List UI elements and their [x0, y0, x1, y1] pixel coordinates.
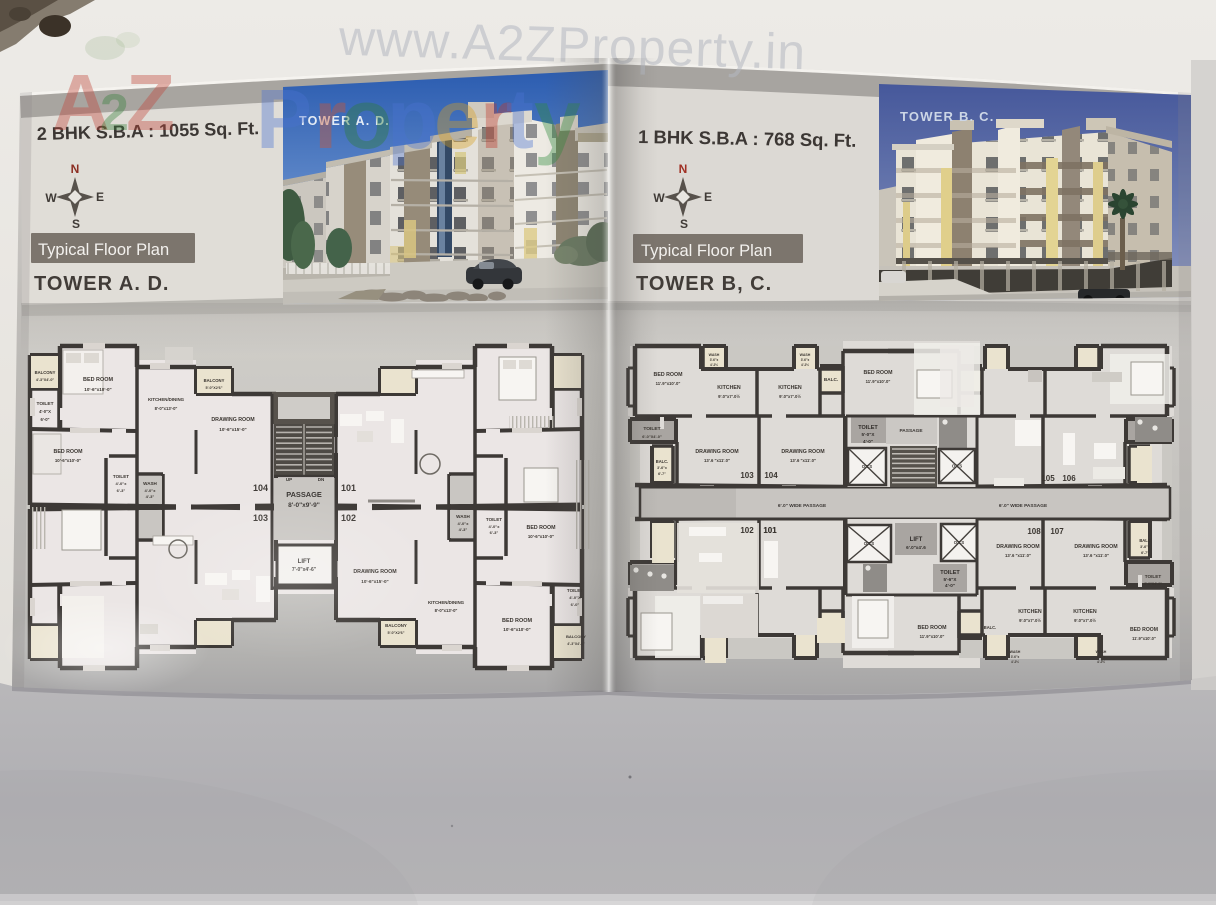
svg-text:106: 106 — [1062, 474, 1076, 483]
svg-text:O.T.S: O.T.S — [954, 540, 965, 545]
svg-text:9'.0"x7'.0½: 9'.0"x7'.0½ — [718, 394, 740, 399]
svg-text:13'.6 "x11'.0": 13'.6 "x11'.0" — [704, 458, 730, 463]
svg-text:KITCHEN/DINING: KITCHEN/DINING — [148, 397, 185, 402]
svg-text:11'.9"x10'.0": 11'.9"x10'.0" — [866, 379, 891, 384]
svg-text:4'-3": 4'-3" — [459, 527, 468, 532]
svg-text:10'-6"x10'-0": 10'-6"x10'-0" — [84, 387, 111, 392]
svg-text:8'-0"x13'-0": 8'-0"x13'-0" — [435, 608, 458, 613]
svg-text:6'-3": 6'-3" — [490, 530, 499, 535]
svg-text:9'.0"x7'.0½: 9'.0"x7'.0½ — [1074, 618, 1096, 623]
svg-text:O.T.S: O.T.S — [864, 541, 875, 546]
svg-text:LIFT: LIFT — [910, 537, 923, 543]
svg-text:DRAWING ROOM: DRAWING ROOM — [695, 449, 739, 455]
svg-text:TOWER B. C.: TOWER B. C. — [900, 109, 995, 124]
svg-text:TOILET: TOILET — [113, 474, 129, 479]
svg-text:6'-3": 6'-3" — [117, 488, 126, 493]
svg-text:DRAWING ROOM: DRAWING ROOM — [996, 544, 1040, 550]
svg-text:P: P — [256, 72, 312, 166]
svg-text:6'.0"x4'.6: 6'.0"x4'.6 — [906, 545, 926, 550]
svg-text:3'-6"x: 3'-6"x — [1140, 545, 1150, 549]
svg-text:4'.2½: 4'.2½ — [710, 363, 718, 367]
svg-text:BED ROOM: BED ROOM — [1130, 627, 1158, 633]
svg-text:6'-7": 6'-7" — [658, 472, 666, 476]
svg-text:DRAWING ROOM: DRAWING ROOM — [211, 417, 255, 423]
svg-text:4'.2½: 4'.2½ — [1097, 660, 1105, 664]
svg-text:101: 101 — [341, 483, 356, 493]
svg-text:KITCHEN: KITCHEN — [778, 385, 802, 391]
svg-text:11'.9"x10'.0": 11'.9"x10'.0" — [656, 381, 681, 386]
svg-text:TOWER A. D.: TOWER A. D. — [34, 273, 169, 295]
svg-text:WASH: WASH — [709, 353, 720, 357]
svg-text:e: e — [434, 72, 481, 166]
svg-text:3'.6"x: 3'.6"x — [801, 358, 810, 362]
svg-text:2: 2 — [100, 84, 129, 142]
svg-text:4'-0"x: 4'-0"x — [489, 524, 501, 529]
svg-text:1 BHK S.B.A : 768 Sq. Ft.: 1 BHK S.B.A : 768 Sq. Ft. — [638, 126, 857, 151]
svg-text:S: S — [72, 217, 80, 231]
svg-text:KITCHEN: KITCHEN — [1018, 609, 1042, 615]
svg-text:8'-0"x13'-0": 8'-0"x13'-0" — [155, 406, 178, 411]
svg-text:4'-0": 4'-0" — [863, 439, 873, 444]
svg-text:WASH: WASH — [1096, 650, 1107, 654]
svg-text:10'-6"x10'-0": 10'-6"x10'-0" — [503, 627, 530, 632]
svg-text:TOILET: TOILET — [486, 517, 502, 522]
svg-text:BALC.: BALC. — [824, 377, 838, 382]
svg-text:102: 102 — [740, 526, 754, 535]
svg-text:O.T.S: O.T.S — [862, 464, 873, 469]
svg-text:13'.6 "x11'.0": 13'.6 "x11'.0" — [790, 458, 816, 463]
svg-text:3'-6"x: 3'-6"x — [657, 466, 667, 470]
svg-text:4'-0"X: 4'-0"X — [39, 409, 51, 414]
svg-text:BALCONY: BALCONY — [35, 370, 56, 375]
svg-text:Typical Floor Plan: Typical Floor Plan — [38, 241, 169, 259]
svg-text:TOILET: TOILET — [1145, 574, 1162, 579]
svg-text:3'.6"x: 3'.6"x — [710, 358, 719, 362]
svg-text:WASH: WASH — [800, 353, 811, 357]
svg-text:4'.2½: 4'.2½ — [801, 363, 809, 367]
svg-text:DRAWING ROOM: DRAWING ROOM — [781, 449, 825, 455]
svg-text:KITCHEN: KITCHEN — [717, 385, 741, 391]
svg-text:PASSAGE: PASSAGE — [899, 428, 923, 434]
svg-text:BED ROOM: BED ROOM — [502, 618, 532, 624]
svg-text:11'.9"x10'.0": 11'.9"x10'.0" — [920, 634, 945, 639]
svg-text:105: 105 — [1041, 474, 1055, 483]
svg-text:E: E — [704, 190, 712, 204]
svg-text:13'.6 "x11'.0": 13'.6 "x11'.0" — [1083, 553, 1109, 558]
svg-text:10'-6"x15'-0": 10'-6"x15'-0" — [219, 427, 246, 432]
svg-text:4'-0"x: 4'-0"x — [458, 521, 470, 526]
svg-text:KITCHEN/DINING: KITCHEN/DINING — [428, 600, 465, 605]
svg-text:9'.0"x7'.0½: 9'.0"x7'.0½ — [779, 394, 801, 399]
svg-text:BED ROOM: BED ROOM — [918, 625, 948, 631]
svg-text:N: N — [679, 162, 688, 176]
svg-text:Z: Z — [126, 58, 175, 147]
svg-text:4'-0": 4'-0" — [945, 583, 955, 588]
svg-text:3'.6"x: 3'.6"x — [1097, 655, 1106, 659]
svg-text:10'-6"x10'-0": 10'-6"x10'-0" — [55, 458, 81, 463]
svg-text:O.T.S: O.T.S — [952, 464, 963, 469]
svg-text:5'.0"X2'6": 5'.0"X2'6" — [206, 386, 223, 390]
svg-text:W: W — [45, 191, 57, 205]
svg-text:S: S — [680, 217, 688, 231]
svg-text:104: 104 — [764, 471, 778, 480]
svg-text:107: 107 — [1050, 527, 1064, 536]
svg-text:13'.6 "x11'.0": 13'.6 "x11'.0" — [1005, 553, 1031, 558]
svg-text:4'-3"X4'-0": 4'-3"X4'-0" — [36, 378, 55, 382]
svg-text:101: 101 — [763, 526, 777, 535]
svg-text:p: p — [387, 72, 438, 166]
svg-text:BALCONY: BALCONY — [204, 378, 225, 383]
svg-text:4'-0"x: 4'-0"x — [145, 488, 157, 493]
svg-text:108: 108 — [1027, 527, 1041, 536]
svg-text:WASH: WASH — [143, 481, 157, 486]
svg-text:3'.6"x: 3'.6"x — [1011, 655, 1020, 659]
svg-text:DN: DN — [318, 477, 325, 482]
svg-text:4'.2½: 4'.2½ — [1011, 660, 1019, 664]
svg-text:BALC: BALC — [1139, 538, 1150, 543]
svg-text:6'-0"X4'-0": 6'-0"X4'-0" — [1144, 582, 1162, 586]
svg-text:4'-3": 4'-3" — [146, 494, 155, 499]
svg-text:N: N — [71, 162, 80, 176]
svg-text:TOILET: TOILET — [36, 401, 53, 407]
svg-text:TOILET: TOILET — [858, 425, 878, 431]
svg-text:t: t — [506, 72, 534, 166]
svg-text:9'.0"x7'.0½: 9'.0"x7'.0½ — [1019, 618, 1041, 623]
svg-text:KITCHEN: KITCHEN — [1073, 609, 1097, 615]
svg-text:UP: UP — [286, 477, 292, 482]
svg-text:6'-0": 6'-0" — [40, 417, 49, 422]
svg-text:11'.9"x10'.0": 11'.9"x10'.0" — [1132, 636, 1156, 641]
svg-text:BED ROOM: BED ROOM — [83, 377, 113, 383]
svg-text:103: 103 — [740, 471, 754, 480]
svg-text:6'-7": 6'-7" — [1141, 551, 1149, 555]
svg-text:BALC.: BALC. — [984, 625, 996, 630]
svg-text:5'-6"X: 5'-6"X — [944, 577, 958, 582]
svg-text:6'.0" WIDE PASSAGE: 6'.0" WIDE PASSAGE — [778, 503, 827, 509]
svg-text:o: o — [341, 72, 392, 166]
svg-text:TOILET: TOILET — [940, 570, 960, 576]
svg-text:DRAWING ROOM: DRAWING ROOM — [1074, 544, 1118, 550]
svg-text:5'-0"X: 5'-0"X — [862, 432, 876, 437]
svg-text:4'-0"x: 4'-0"x — [116, 481, 128, 486]
svg-text:Typical Floor Plan: Typical Floor Plan — [641, 242, 772, 260]
svg-text:E: E — [96, 190, 104, 204]
svg-text:WASH: WASH — [456, 514, 470, 519]
svg-text:WASH: WASH — [1010, 650, 1021, 654]
svg-text:6'.0" WIDE PASSAGE: 6'.0" WIDE PASSAGE — [999, 503, 1048, 509]
svg-text:BED ROOM: BED ROOM — [864, 370, 894, 376]
svg-text:BED ROOM: BED ROOM — [54, 449, 84, 455]
